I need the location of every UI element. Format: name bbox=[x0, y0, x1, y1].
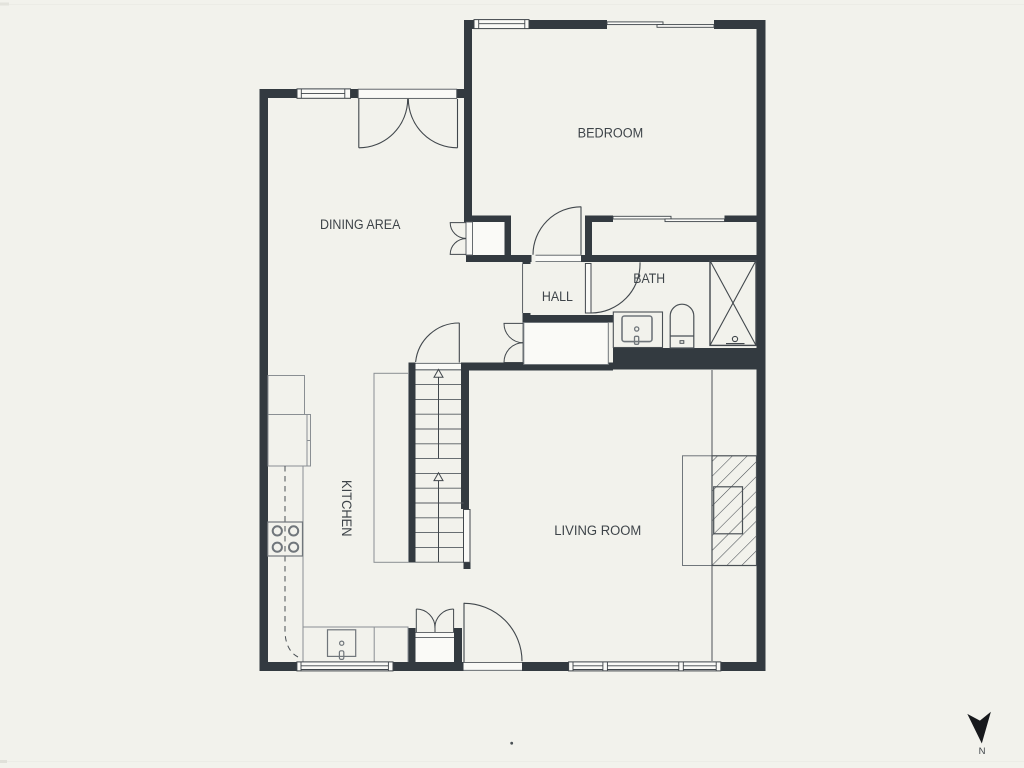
svg-text:HALL: HALL bbox=[542, 289, 573, 305]
svg-text:BEDROOM: BEDROOM bbox=[578, 126, 644, 142]
svg-text:N: N bbox=[979, 746, 986, 757]
svg-text:BATH: BATH bbox=[633, 271, 665, 287]
svg-text:LIVING ROOM: LIVING ROOM bbox=[554, 523, 641, 539]
svg-text:KITCHEN: KITCHEN bbox=[338, 480, 354, 537]
svg-text:DINING AREA: DINING AREA bbox=[320, 217, 401, 233]
